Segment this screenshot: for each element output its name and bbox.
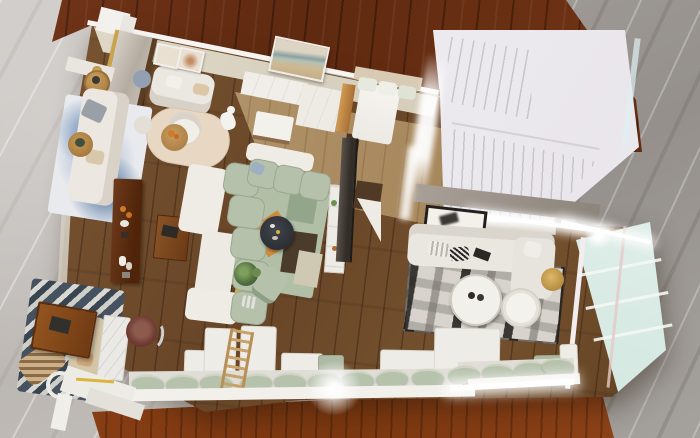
gold-stool bbox=[541, 268, 564, 291]
dog-sculpture-head bbox=[227, 106, 235, 114]
bw-pattern-pillow bbox=[449, 246, 469, 262]
blue-pouf bbox=[133, 70, 151, 88]
shelf-item-green bbox=[331, 200, 337, 206]
round-white-table-small bbox=[501, 288, 541, 328]
console-decor-orange-2 bbox=[126, 212, 132, 218]
table-decor-cream bbox=[272, 236, 278, 240]
white-pouf bbox=[134, 116, 152, 134]
round-white-table-large bbox=[450, 274, 502, 326]
table-decor-dark-2 bbox=[477, 294, 484, 301]
sunlight-flare-right-spot bbox=[584, 222, 612, 250]
console-decor-vase bbox=[119, 256, 126, 266]
sunlight-flare-bench bbox=[306, 360, 362, 416]
flower-decor bbox=[168, 130, 175, 137]
console-decor-dark bbox=[121, 232, 129, 238]
table-decor-yellow bbox=[276, 230, 280, 234]
table-decor-dark bbox=[468, 292, 475, 299]
round-coffee-table bbox=[161, 124, 188, 151]
apartment-render bbox=[0, 0, 700, 438]
console-decor-gray bbox=[122, 272, 130, 278]
table-decor-white bbox=[270, 224, 275, 228]
striped-pillow bbox=[427, 241, 450, 258]
side-table-decor bbox=[92, 76, 100, 84]
console-decor-vase-2 bbox=[126, 262, 132, 270]
sage-cushion bbox=[226, 193, 267, 230]
sage-cushion-top bbox=[298, 169, 333, 202]
console-decor-bowl bbox=[120, 220, 129, 227]
patterned-pillow bbox=[241, 295, 258, 309]
console-decor-orange bbox=[120, 206, 126, 212]
side-table-plant bbox=[75, 138, 85, 147]
